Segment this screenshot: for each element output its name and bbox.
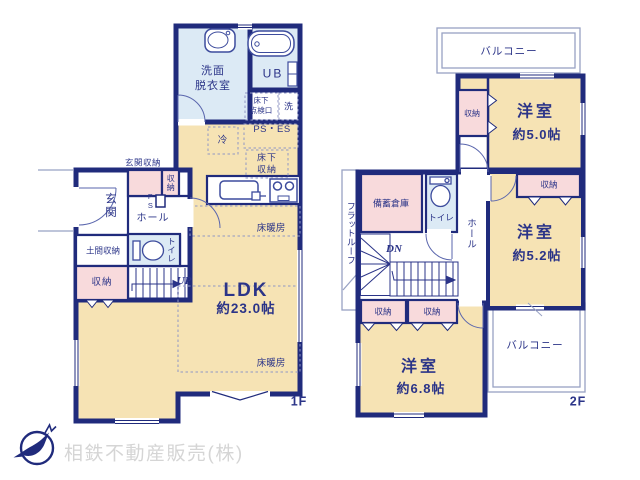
porch-lines — [38, 170, 73, 231]
label-balcony-bottom: バルコニー — [506, 340, 563, 351]
label-room-5-2-size: 約5.2帖 — [512, 249, 561, 263]
label-storage-6-8-a: 収納 — [374, 308, 391, 317]
label-underfloor-hatch-1: 床下 — [254, 97, 269, 105]
label-underfloor-hatch-2: 点検口 — [250, 107, 273, 115]
label-toilet-2f: トイレ — [428, 214, 454, 223]
label-storage-5-2: 収納 — [540, 181, 557, 190]
label-balcony-top: バルコニー — [480, 46, 537, 57]
toilet-icon-1f — [133, 241, 164, 260]
label-toilet-1f: トイレ — [167, 237, 176, 263]
label-ldk: LDK — [223, 281, 268, 301]
label-entrance: 玄関 — [104, 193, 116, 220]
label-unit-bath: UB — [263, 68, 284, 81]
washbasin-icon — [205, 29, 235, 52]
label-floor-heating-1: 床暖房 — [257, 224, 286, 234]
label-washroom-2: 脱衣室 — [195, 81, 231, 93]
label-up: UP — [177, 276, 192, 288]
floorplan-page: 洗面 脱衣室 UB 床下 点検口 洗 PS・ES 冷 床下 収納 玄関収納 収納… — [0, 0, 640, 480]
label-entrance-storage: 玄関収納 — [125, 159, 161, 168]
label-storage-5-0: 収納 — [464, 110, 480, 118]
label-floor2: 2F — [570, 395, 587, 408]
label-room-5-0: 洋室 — [517, 105, 555, 122]
label-room-6-8-size: 約6.8帖 — [396, 382, 445, 396]
compass-north-mark — [45, 425, 56, 433]
label-stock-storage: 備蓄倉庫 — [373, 199, 409, 208]
label-storage-6-8-b: 収納 — [423, 308, 440, 317]
company-name: 相鉄不動産販売(株) — [64, 439, 244, 466]
pipe-space-box — [156, 195, 165, 207]
label-doma-storage: 土間収納 — [86, 247, 120, 256]
label-storage-small: 収納 — [166, 174, 174, 192]
label-washroom-1: 洗面 — [201, 66, 225, 78]
label-pipe-space: PS — [146, 192, 154, 210]
label-underfloor-storage-2: 収納 — [257, 165, 277, 174]
kitchen-faucet-icon — [252, 192, 260, 200]
label-flat-roof: フラットルーフ — [345, 202, 354, 265]
label-underfloor-storage-1: 床下 — [257, 153, 277, 162]
label-hall-1f: ホール — [137, 214, 170, 225]
label-room-6-8: 洋室 — [401, 360, 439, 377]
compass-icon — [14, 425, 57, 464]
label-ps-es: PS・ES — [253, 125, 290, 135]
label-storage-bl: 収納 — [91, 278, 112, 288]
label-room-5-2: 洋室 — [517, 226, 555, 243]
label-floor1: 1F — [291, 395, 308, 408]
label-hall-2f: ホール — [465, 218, 475, 250]
label-ldk-size: 約23.0帖 — [216, 302, 275, 316]
label-fridge: 冷 — [218, 136, 229, 146]
label-room-5-0-size: 約5.0帖 — [512, 128, 561, 142]
room-5-0-entry-strip — [461, 136, 487, 168]
label-washer: 洗 — [284, 102, 294, 111]
toilet-icon-2f — [430, 177, 451, 207]
label-dn: DN — [386, 244, 402, 256]
stove-icon — [270, 179, 297, 202]
label-floor-heating-2: 床暖房 — [257, 359, 286, 369]
closet-entrance-storage — [128, 170, 162, 196]
kitchen-counter — [207, 176, 300, 204]
